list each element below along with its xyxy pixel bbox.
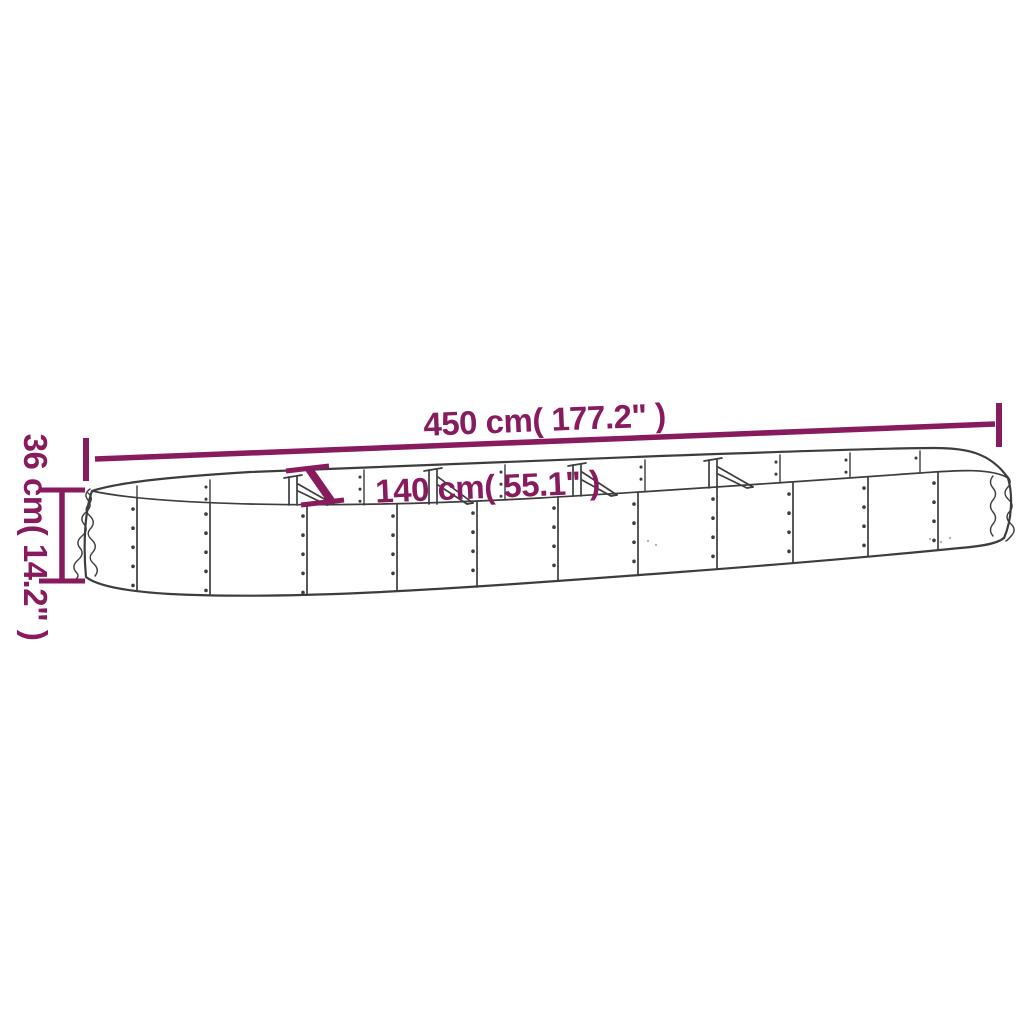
raised-bed-dimension-diagram: 450 cm( 177.2" ) 140 cm( 55.1" ) 36 cm( …	[0, 0, 1024, 1024]
product-diagram-canvas: 450 cm( 177.2" ) 140 cm( 55.1" ) 36 cm( …	[0, 0, 1024, 1024]
height-dimension: 36 cm( 14.2" )	[17, 434, 85, 641]
height-dimension-label: 36 cm( 14.2" )	[17, 434, 54, 641]
